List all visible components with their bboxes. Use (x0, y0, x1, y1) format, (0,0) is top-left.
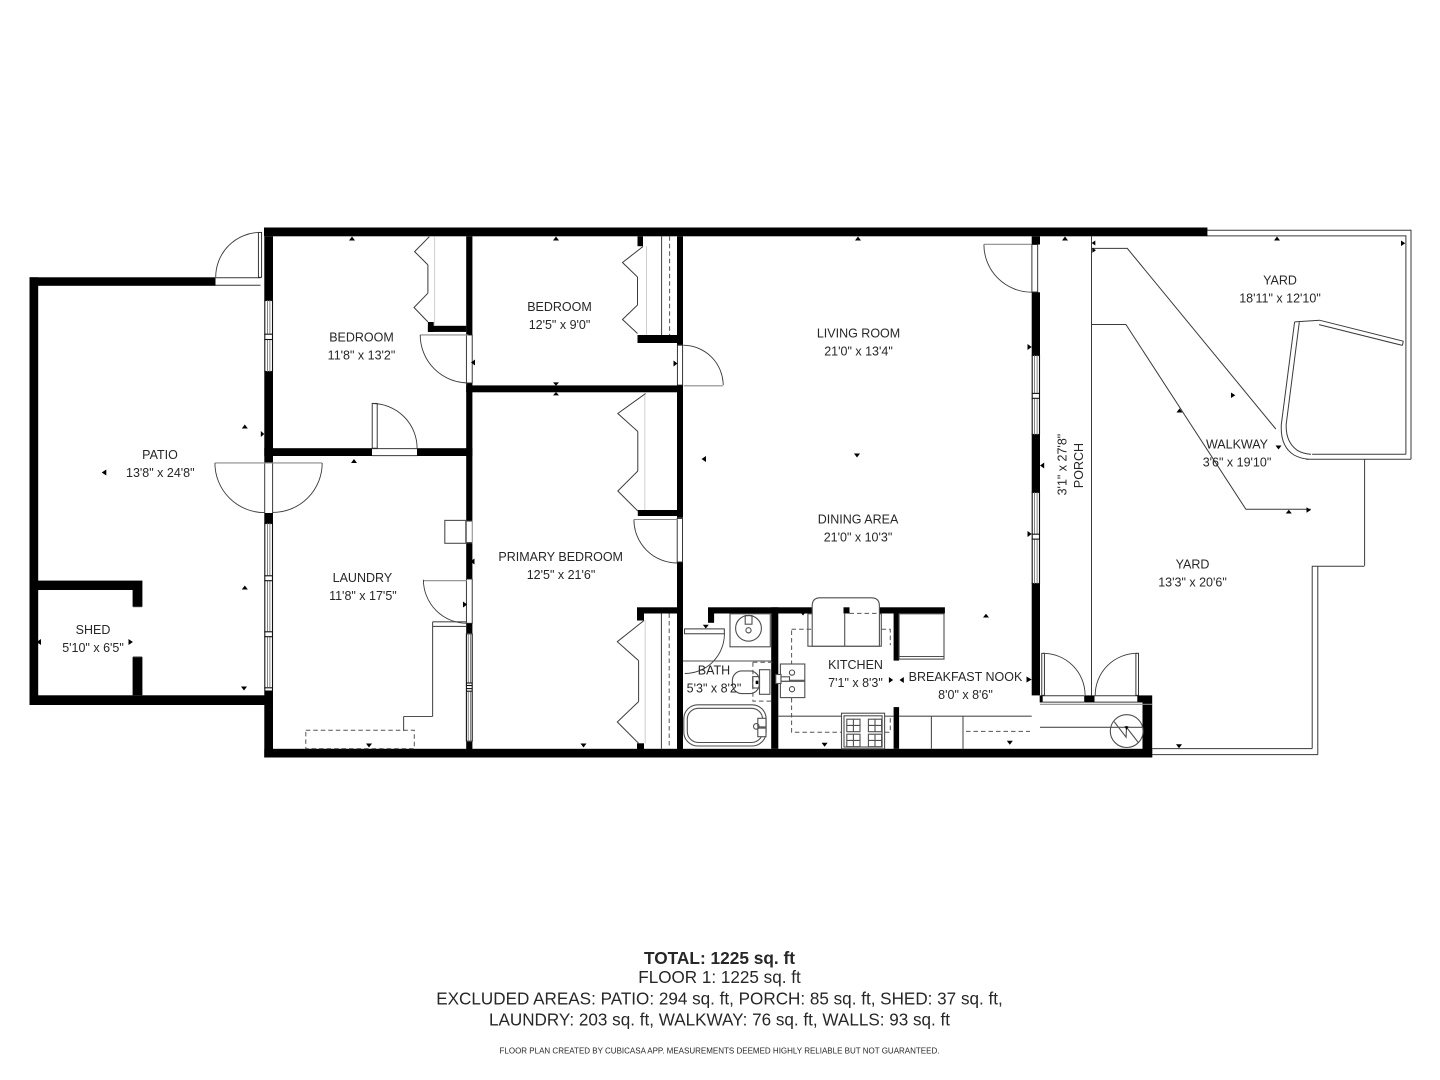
svg-text:5'10" x 6'5": 5'10" x 6'5" (62, 641, 124, 655)
svg-text:11'8" x 17'5": 11'8" x 17'5" (329, 589, 397, 603)
svg-text:SHED: SHED (76, 623, 111, 637)
svg-text:YARD: YARD (1176, 558, 1210, 572)
svg-text:LAUNDRY: 203 sq. ft, WALKWAY:: LAUNDRY: 203 sq. ft, WALKWAY: 76 sq. ft,… (489, 1011, 950, 1030)
svg-text:12'5" x 9'0": 12'5" x 9'0" (529, 318, 591, 332)
svg-text:BATH: BATH (698, 664, 730, 678)
svg-text:12'5" x 21'6": 12'5" x 21'6" (527, 568, 596, 582)
svg-text:BEDROOM: BEDROOM (329, 330, 394, 344)
svg-text:DINING AREA: DINING AREA (818, 513, 899, 527)
svg-text:5'3" x 8'2": 5'3" x 8'2" (687, 682, 742, 696)
svg-text:FLOOR 1: 1225 sq. ft: FLOOR 1: 1225 sq. ft (638, 968, 801, 987)
svg-text:3'1" x 27'8": 3'1" x 27'8" (1056, 434, 1070, 496)
svg-text:PATIO: PATIO (142, 448, 178, 462)
svg-text:LAUNDRY: LAUNDRY (333, 571, 393, 585)
svg-text:BEDROOM: BEDROOM (527, 300, 592, 314)
svg-text:21'0" x 13'4": 21'0" x 13'4" (824, 345, 893, 359)
svg-text:LIVING ROOM: LIVING ROOM (817, 327, 900, 341)
svg-text:21'0" x 10'3": 21'0" x 10'3" (824, 531, 893, 545)
svg-text:7'1" x 8'3": 7'1" x 8'3" (828, 676, 883, 690)
svg-text:FLOOR PLAN CREATED BY CUBICASA: FLOOR PLAN CREATED BY CUBICASA APP. MEAS… (500, 1047, 940, 1056)
svg-text:PORCH: PORCH (1072, 443, 1086, 488)
svg-text:WALKWAY: WALKWAY (1206, 438, 1269, 452)
svg-text:18'11" x 12'10": 18'11" x 12'10" (1239, 292, 1321, 306)
svg-text:BREAKFAST NOOK: BREAKFAST NOOK (909, 670, 1023, 684)
svg-text:TOTAL: 1225 sq. ft: TOTAL: 1225 sq. ft (644, 948, 795, 968)
svg-text:8'0" x 8'6": 8'0" x 8'6" (938, 688, 993, 702)
svg-text:PRIMARY BEDROOM: PRIMARY BEDROOM (498, 550, 623, 564)
svg-text:13'8" x 24'8": 13'8" x 24'8" (126, 466, 195, 480)
svg-text:13'3" x 20'6": 13'3" x 20'6" (1158, 576, 1227, 590)
svg-text:YARD: YARD (1263, 274, 1297, 288)
svg-text:11'8" x 13'2": 11'8" x 13'2" (328, 348, 396, 362)
svg-text:3'6" x 19'10": 3'6" x 19'10" (1203, 456, 1272, 470)
svg-text:KITCHEN: KITCHEN (828, 658, 883, 672)
svg-text:EXCLUDED AREAS: PATIO: 294 sq.: EXCLUDED AREAS: PATIO: 294 sq. ft, PORCH… (436, 990, 1003, 1009)
